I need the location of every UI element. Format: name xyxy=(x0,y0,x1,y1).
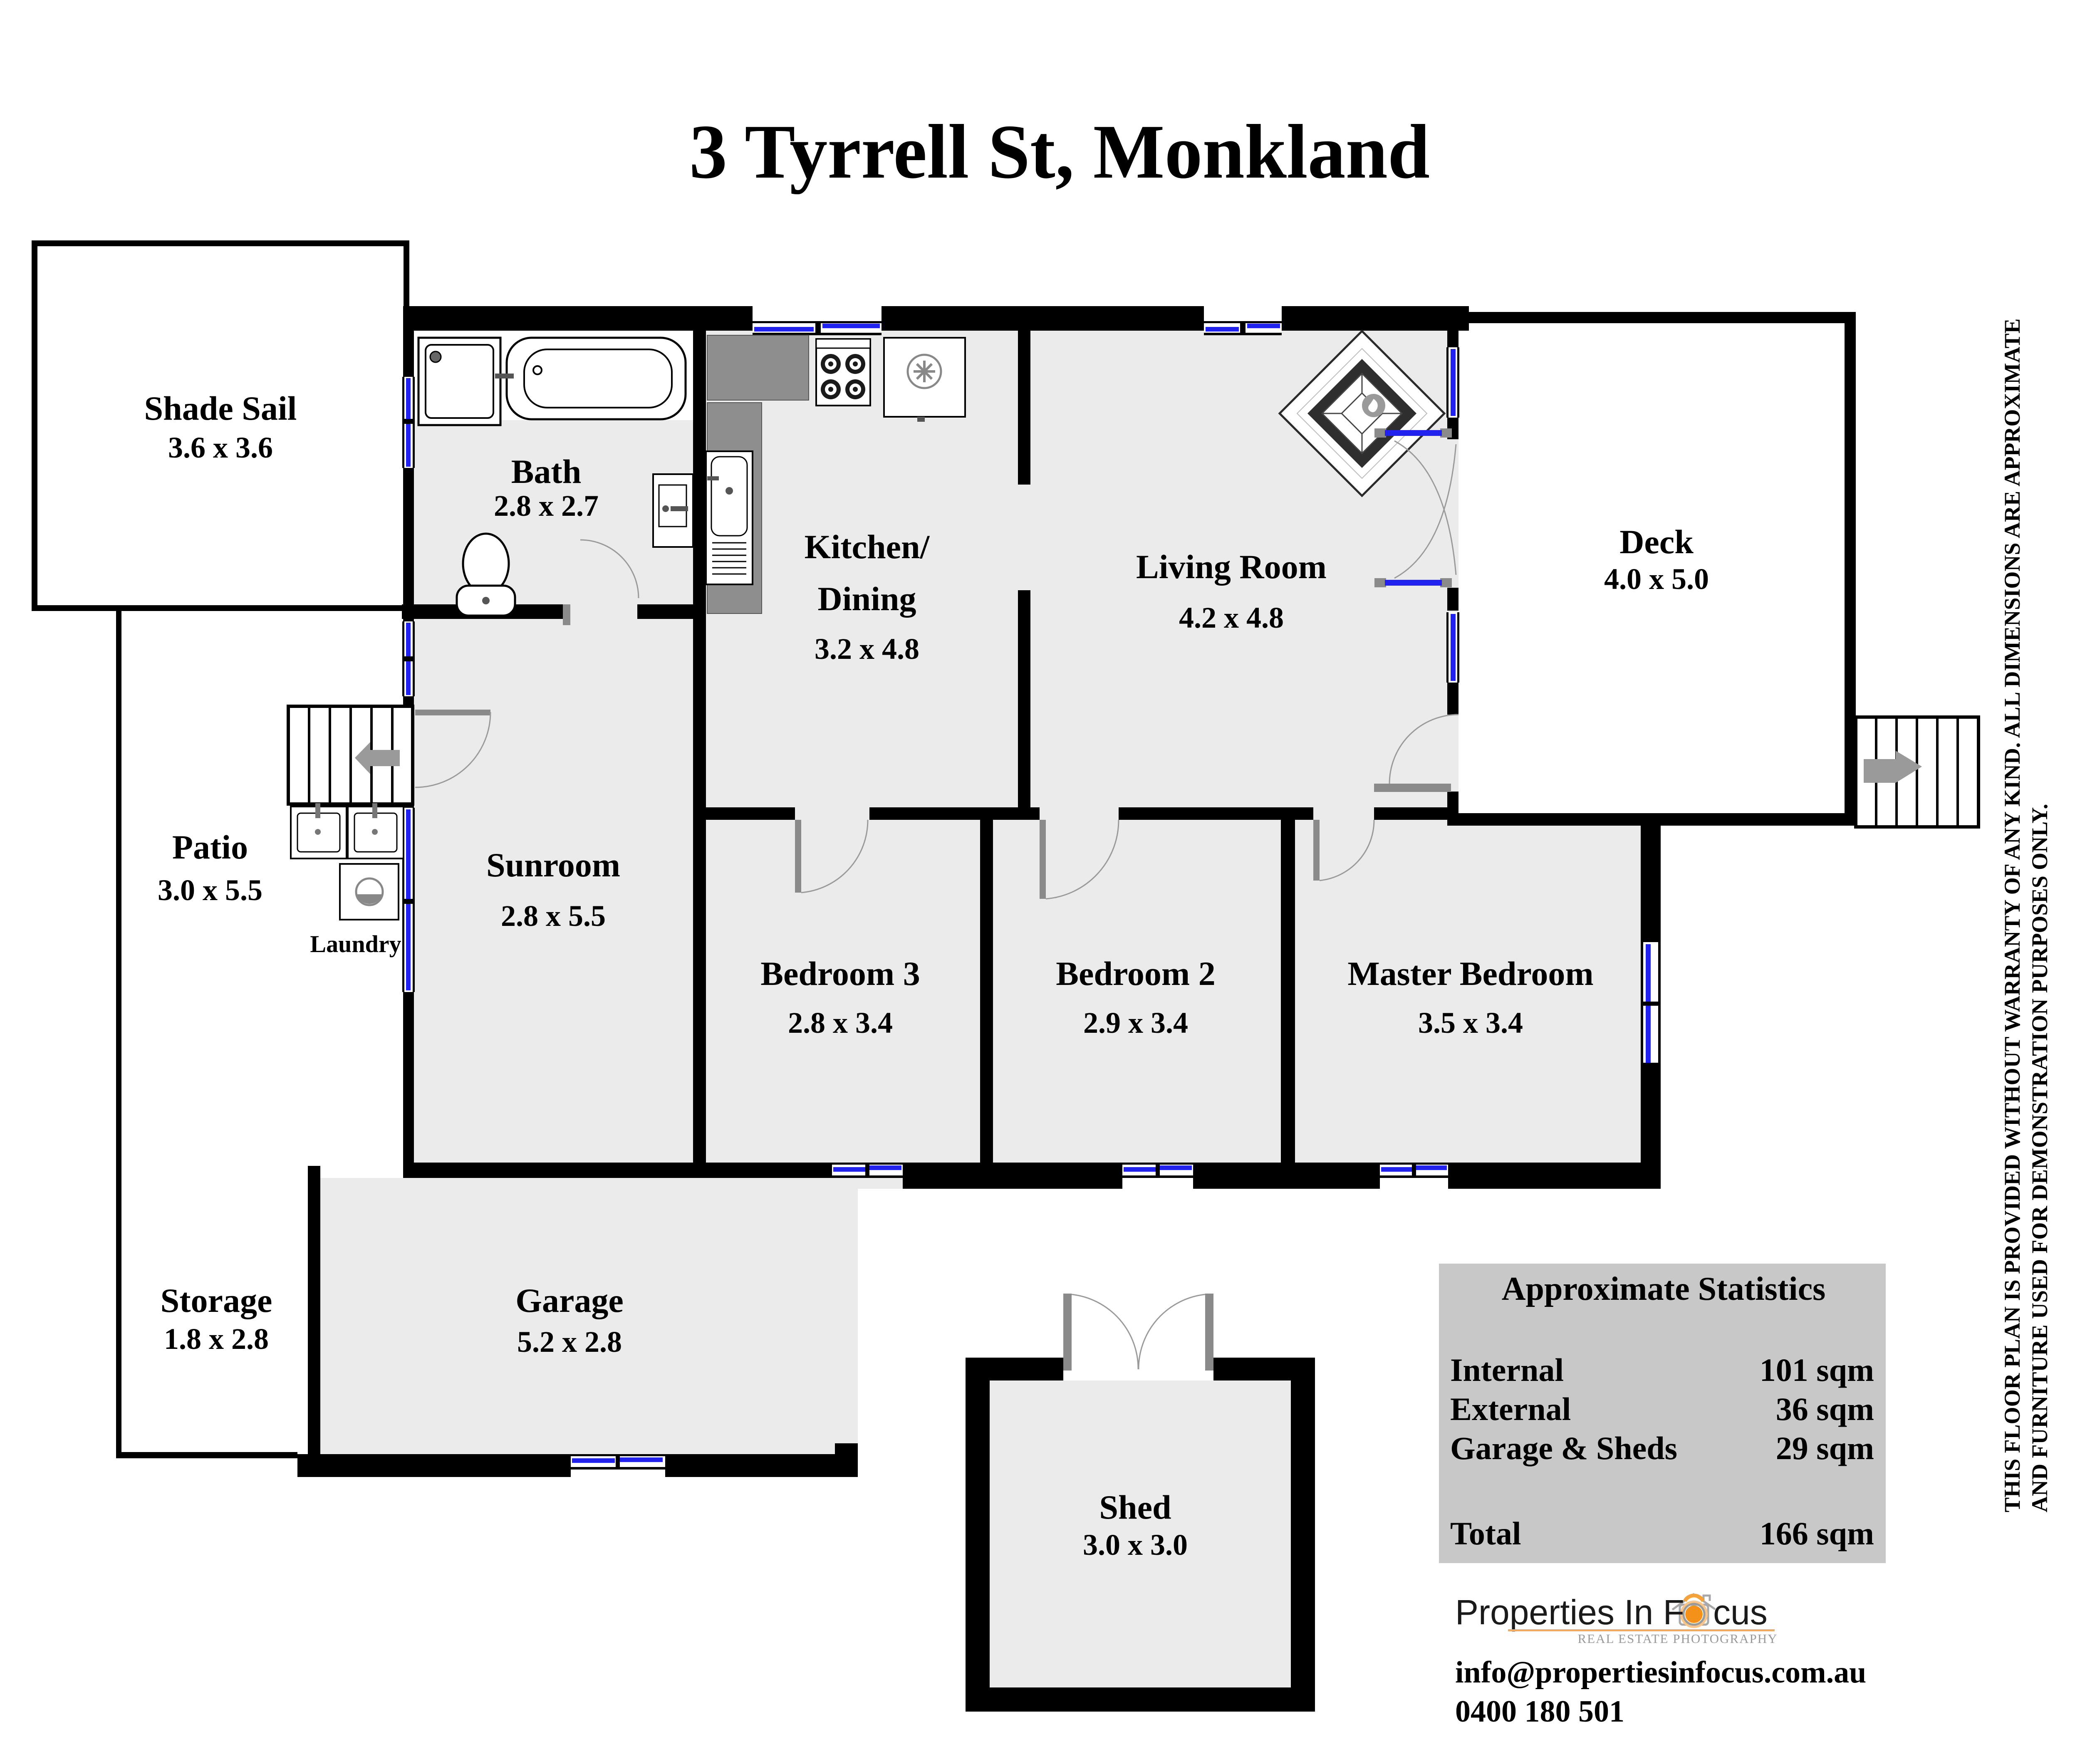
svg-text:Internal: Internal xyxy=(1450,1352,1564,1388)
svg-text:3.6 x 3.6: 3.6 x 3.6 xyxy=(168,431,273,464)
svg-text:3.5 x 3.4: 3.5 x 3.4 xyxy=(1418,1006,1523,1039)
svg-text:Dining: Dining xyxy=(818,580,916,618)
svg-text:External: External xyxy=(1450,1391,1571,1427)
svg-text:REAL ESTATE PHOTOGRAPHY: REAL ESTATE PHOTOGRAPHY xyxy=(1578,1631,1778,1646)
svg-text:2.8 x 5.5: 2.8 x 5.5 xyxy=(501,899,606,933)
svg-text:Garage: Garage xyxy=(515,1282,624,1319)
svg-text:Shed: Shed xyxy=(1099,1488,1171,1526)
svg-text:Deck: Deck xyxy=(1619,523,1694,561)
svg-text:Sunroom: Sunroom xyxy=(486,846,620,884)
svg-text:Bath: Bath xyxy=(511,453,582,490)
svg-text:4.0 x 5.0: 4.0 x 5.0 xyxy=(1604,562,1709,596)
svg-text:3.0 x 5.5: 3.0 x 5.5 xyxy=(158,873,262,907)
svg-text:2.8 x 3.4: 2.8 x 3.4 xyxy=(788,1006,893,1039)
svg-text:29 sqm: 29 sqm xyxy=(1776,1430,1874,1466)
svg-text:THIS FLOOR PLAN IS PROVIDED WI: THIS FLOOR PLAN IS PROVIDED WITHOUT WARR… xyxy=(2000,319,2025,1512)
svg-text:info@propertiesinfocus.com.au: info@propertiesinfocus.com.au xyxy=(1455,1655,1866,1690)
svg-text:Shade Sail: Shade Sail xyxy=(144,389,297,427)
svg-text:1.8 x 2.8: 1.8 x 2.8 xyxy=(164,1322,269,1356)
svg-text:2.9 x 3.4: 2.9 x 3.4 xyxy=(1083,1006,1188,1039)
svg-text:Approximate Statistics: Approximate Statistics xyxy=(1502,1271,1825,1307)
svg-text:Total: Total xyxy=(1450,1515,1521,1551)
svg-text:2.8 x 2.7: 2.8 x 2.7 xyxy=(494,489,599,522)
svg-text:cus: cus xyxy=(1713,1593,1768,1632)
svg-text:3.0 x 3.0: 3.0 x 3.0 xyxy=(1083,1528,1188,1561)
svg-text:Garage & Sheds: Garage & Sheds xyxy=(1450,1430,1677,1466)
svg-text:5.2 x 2.8: 5.2 x 2.8 xyxy=(517,1325,622,1358)
svg-text:36 sqm: 36 sqm xyxy=(1776,1391,1874,1427)
svg-text:4.2 x 4.8: 4.2 x 4.8 xyxy=(1179,601,1284,634)
svg-text:101 sqm: 101 sqm xyxy=(1760,1352,1874,1388)
svg-text:Properties In F: Properties In F xyxy=(1455,1593,1684,1632)
svg-text:Bedroom 3: Bedroom 3 xyxy=(760,955,920,992)
svg-text:AND FURNITURE USED FOR DEMONST: AND FURNITURE USED FOR DEMONSTRATION PUR… xyxy=(2027,804,2052,1512)
svg-text:Bedroom 2: Bedroom 2 xyxy=(1056,955,1215,992)
svg-text:3 Tyrrell St, Monkland: 3 Tyrrell St, Monkland xyxy=(689,109,1430,195)
svg-text:Patio: Patio xyxy=(172,828,248,866)
svg-text:Living Room: Living Room xyxy=(1136,548,1327,586)
svg-text:Kitchen/: Kitchen/ xyxy=(805,528,930,566)
svg-text:166 sqm: 166 sqm xyxy=(1760,1515,1874,1551)
svg-text:Laundry: Laundry xyxy=(310,930,401,957)
svg-text:0400 180 501: 0400 180 501 xyxy=(1455,1695,1624,1729)
svg-text:Storage: Storage xyxy=(161,1282,272,1319)
svg-text:3.2 x 4.8: 3.2 x 4.8 xyxy=(815,632,919,666)
svg-text:Master Bedroom: Master Bedroom xyxy=(1347,955,1593,992)
